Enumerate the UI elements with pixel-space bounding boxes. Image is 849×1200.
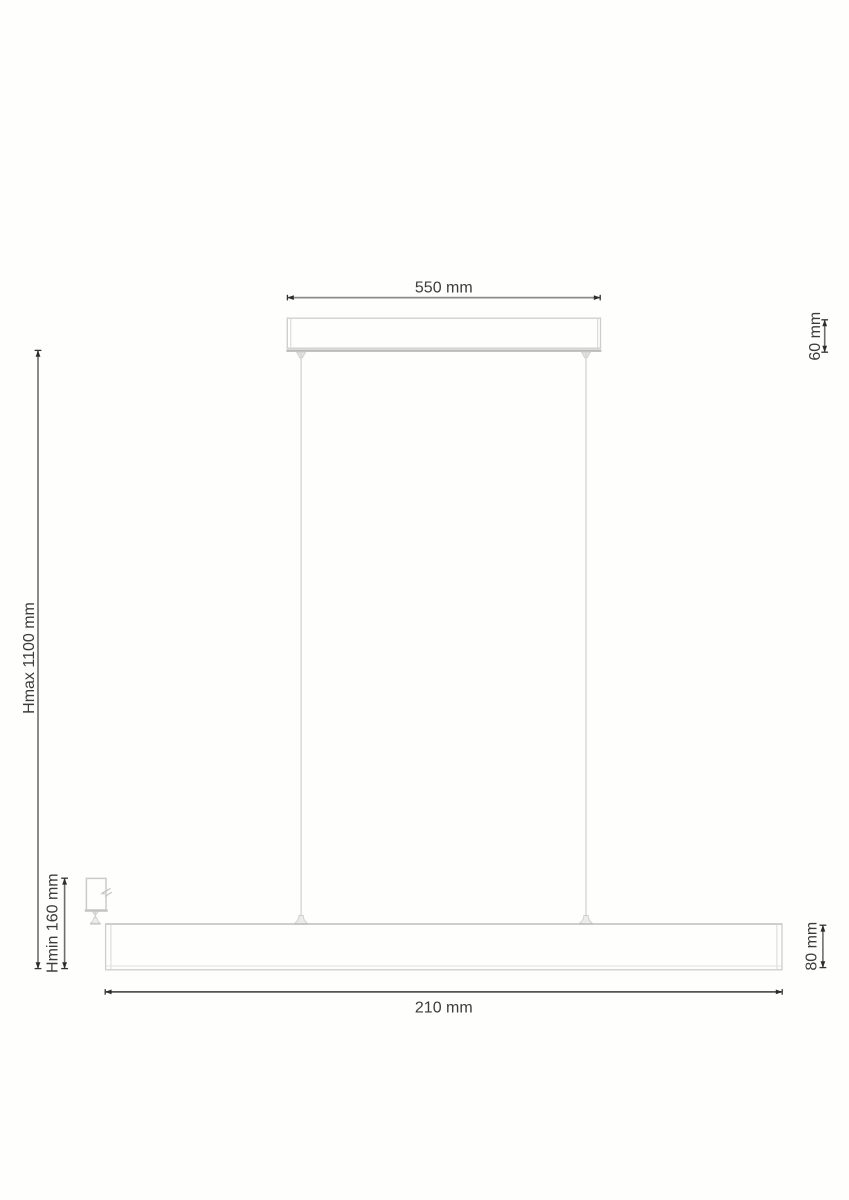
- svg-text:Hmax 1100 mm: Hmax 1100 mm: [21, 602, 38, 714]
- svg-text:Hmin 160 mm: Hmin 160 mm: [45, 873, 62, 973]
- svg-text:80 mm: 80 mm: [804, 922, 821, 971]
- svg-text:550 mm: 550 mm: [415, 280, 473, 297]
- svg-text:210 mm: 210 mm: [415, 999, 473, 1016]
- svg-text:60 mm: 60 mm: [807, 312, 824, 361]
